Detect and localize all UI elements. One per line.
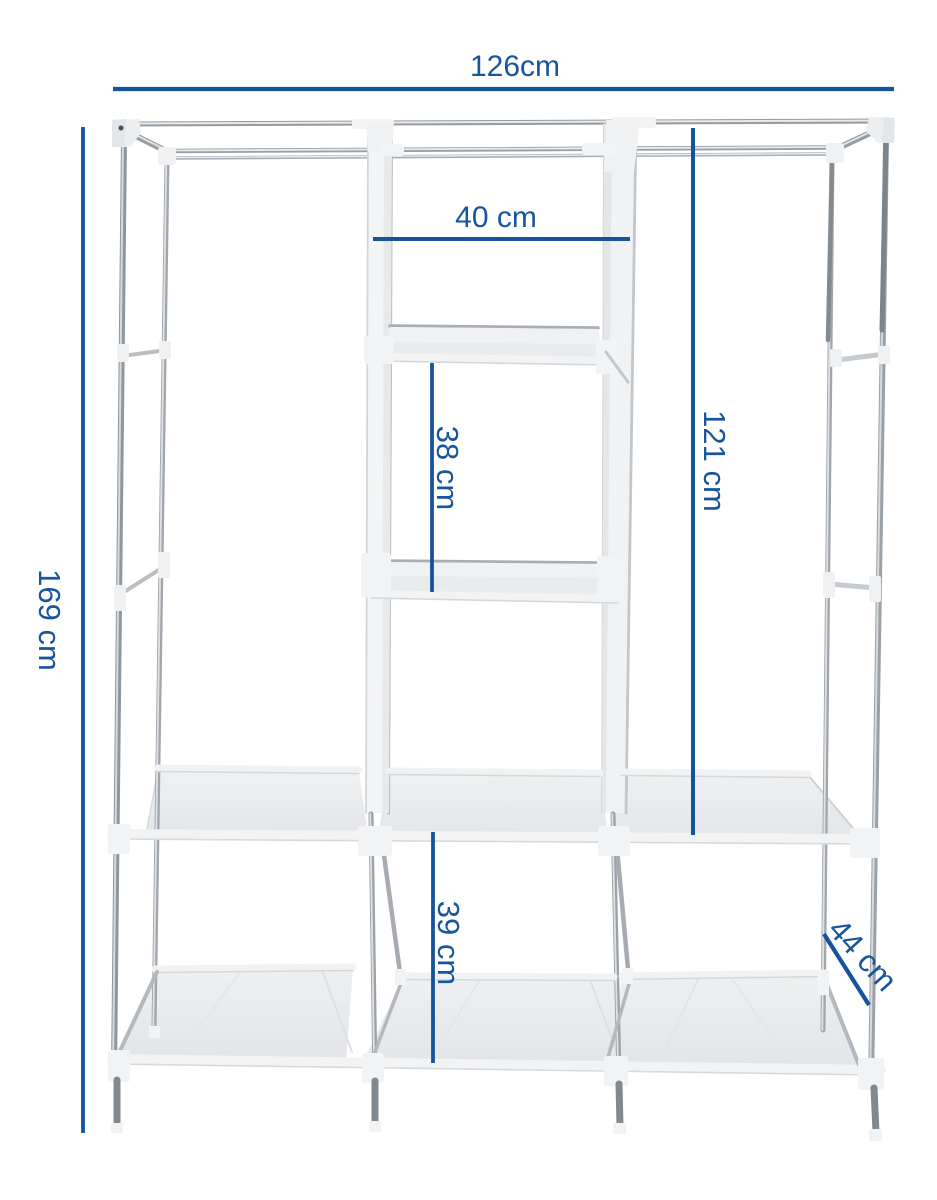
svg-text:39 cm: 39 cm <box>431 901 466 985</box>
svg-text:169 cm: 169 cm <box>32 569 67 671</box>
svg-text:38 cm: 38 cm <box>430 426 465 510</box>
svg-text:121 cm: 121 cm <box>697 410 732 512</box>
svg-text:126cm: 126cm <box>470 50 560 83</box>
svg-text:40 cm: 40 cm <box>455 201 537 234</box>
